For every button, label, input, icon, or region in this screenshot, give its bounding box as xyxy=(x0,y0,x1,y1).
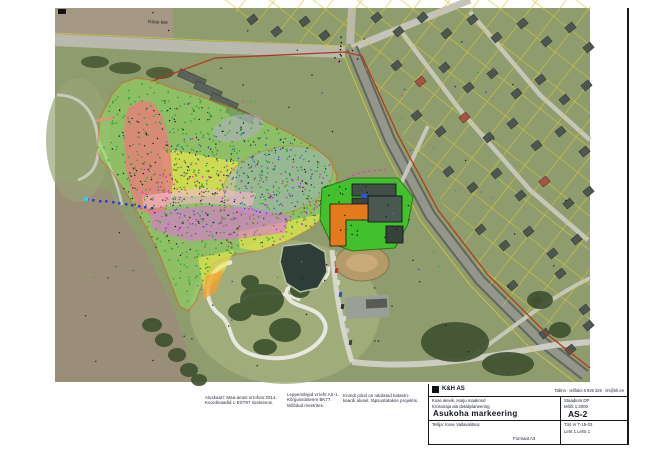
job-number-field: Töö nr T-15-03 xyxy=(564,422,592,427)
sheet-frame-line xyxy=(627,8,629,445)
facility-blue-marker xyxy=(361,194,367,198)
drawing-title: Asukoha markeering xyxy=(433,409,518,418)
stage-field: Staadium DP xyxy=(564,398,589,403)
drawing-sheet: { "map": { "road_label": "Kose tee", "la… xyxy=(0,0,650,459)
title-block-divider xyxy=(428,444,627,445)
company-contact: Tallinn · tel/faks 6 626 326 · kh@kh.ee xyxy=(554,388,624,393)
drawing-number: AS-2 xyxy=(568,409,587,419)
scale-field: Mõõt 1:2000 xyxy=(564,404,588,409)
note-basemap: Aluskaart: Maa-ameti ortofoto 2014. Koor… xyxy=(205,395,275,406)
client-label: Tellija: xyxy=(432,422,444,427)
parked-cars xyxy=(366,298,387,308)
client-value: Kose Vallavalitsus xyxy=(445,422,480,427)
company-name: K&H AS xyxy=(442,386,465,392)
note-legend-ref: Leppemärgid vt leht AS-1. Kõrgussüsteem … xyxy=(287,392,339,408)
company-logo xyxy=(432,386,439,393)
title-block-divider-vertical xyxy=(560,396,561,444)
facility-building-dark-2 xyxy=(368,196,402,222)
facility-building-dark-1 xyxy=(352,184,396,196)
client-field: Tellija: Kose Vallavalitsus xyxy=(432,422,480,427)
object-line-2: Krossiraja ala detailplaneering xyxy=(432,404,490,409)
note-line: kaardi alusel, täpsustatakse projektis. xyxy=(343,398,423,403)
note-boundaries: Krundi piirid on näidatud katastri- kaar… xyxy=(343,393,423,404)
title-block-border-left xyxy=(428,384,429,444)
title-block-divider xyxy=(428,420,627,421)
road-name-label: Kose tee xyxy=(148,19,168,26)
dirt-oval-inner xyxy=(346,254,378,272)
job-value: T-15-03 xyxy=(578,422,593,427)
note-line: Kõrgussüsteem BK77. xyxy=(287,397,339,402)
scale-value: 1:2000 xyxy=(575,404,588,409)
job-label: Töö nr xyxy=(564,422,576,427)
title-block-divider xyxy=(428,396,627,397)
scale-label: Mõõt xyxy=(564,404,574,409)
note-line: Koordinaadid L-EST97 süsteemis. xyxy=(205,400,275,405)
object-line-1: Kose alevik, Harju maakond xyxy=(432,398,486,403)
stage-label: Staadium xyxy=(564,398,582,403)
sheets-label: Lehti xyxy=(577,429,586,434)
sheet-number-field: Leht 1 Lehti 1 xyxy=(564,429,590,434)
sheet-value: 1 xyxy=(574,429,576,434)
sheets-value: 1 xyxy=(588,429,590,434)
format-field: Formaat A3 xyxy=(513,436,535,441)
sheet-label: Leht xyxy=(564,429,572,434)
corner-mark xyxy=(58,9,66,14)
facility-building-dark-4 xyxy=(386,226,403,243)
stage-value: DP xyxy=(583,398,589,403)
survey-marker-cyan xyxy=(84,197,88,201)
title-block: K&H AS Tallinn · tel/faks 6 626 326 · kh… xyxy=(428,384,627,444)
note-line: Mõõdud meetrites. xyxy=(287,403,339,408)
svg-text:Kose tee: Kose tee xyxy=(148,19,168,26)
